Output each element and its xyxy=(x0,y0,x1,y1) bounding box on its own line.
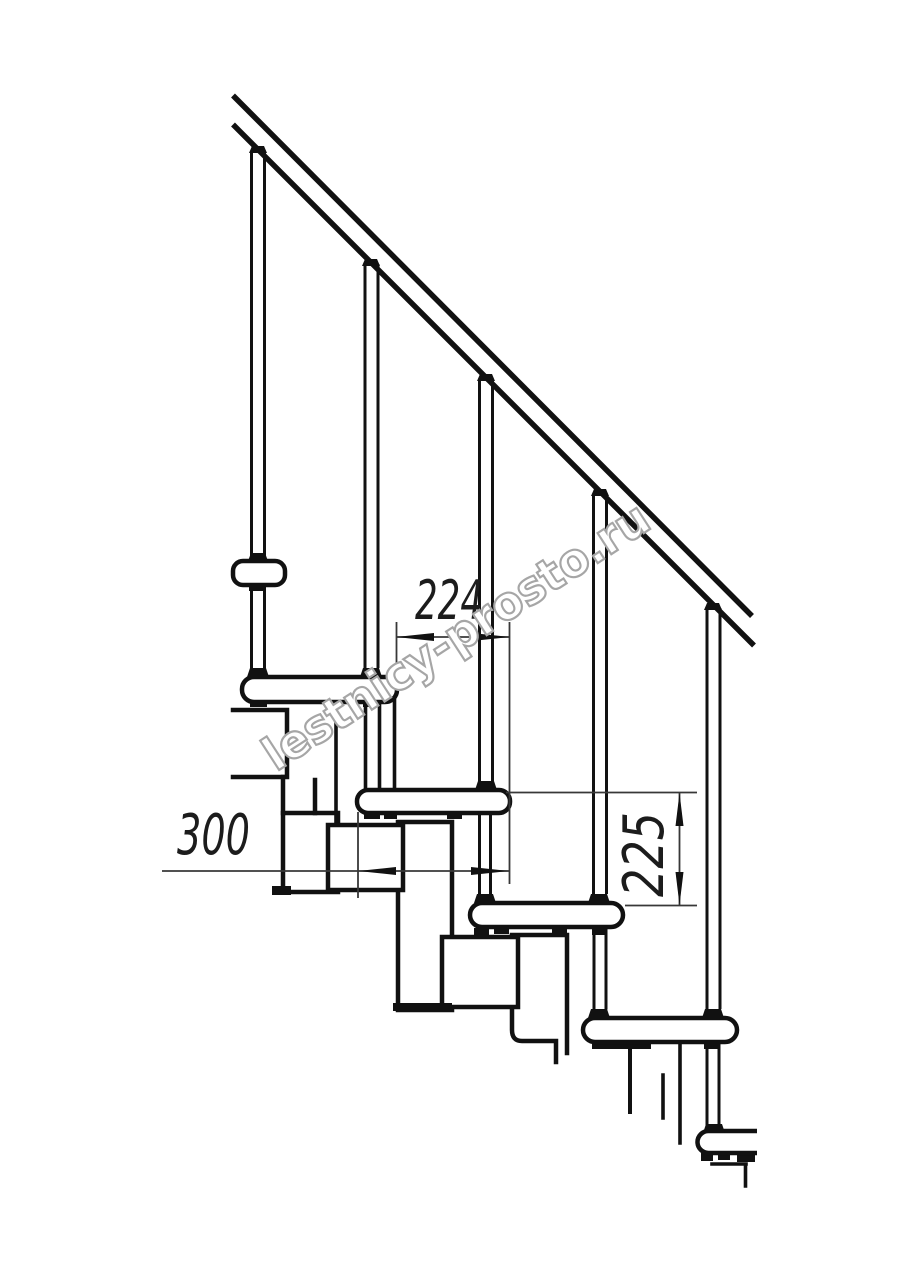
staircase-side-elevation-drawing: 224 300 225 lestnicy-prosto.ru xyxy=(0,0,914,1280)
baluster-4-lower-shaft xyxy=(707,1043,719,1124)
baluster-5-shaft xyxy=(707,608,720,1009)
bracket-descender xyxy=(283,777,315,813)
foot-flange-t4-right xyxy=(702,1009,724,1018)
tread-5-partial xyxy=(698,1131,757,1153)
baluster-3-lower-shaft xyxy=(594,928,606,1008)
nub-t3-d xyxy=(592,928,607,935)
nub-t1-a xyxy=(250,700,267,707)
module-a2-foot xyxy=(272,886,291,895)
nub-t2-a xyxy=(364,812,380,819)
nub-t3-a xyxy=(474,928,489,935)
nub-t3-c xyxy=(552,928,567,934)
module-a3-base-strip xyxy=(393,1003,452,1011)
staircase-drawing-canvas: 224 300 225 lestnicy-prosto.ru xyxy=(0,0,914,1280)
foot-flange-t3-left xyxy=(474,894,496,903)
foot-flange-t3-right xyxy=(588,894,610,903)
tread-3 xyxy=(470,903,623,927)
baluster-2-shaft xyxy=(365,264,378,668)
bottom-fade-outline xyxy=(712,1164,746,1186)
module-a5-edge xyxy=(663,1044,680,1143)
nub-t2-b xyxy=(384,812,397,819)
foot-flange-t4-left xyxy=(588,1009,610,1018)
baluster-2-lower-shaft xyxy=(480,813,491,893)
tread-4 xyxy=(583,1018,737,1042)
module-box-m3 xyxy=(442,937,518,1007)
dim-label-300: 300 xyxy=(177,803,250,868)
dim-label-225: 225 xyxy=(612,812,677,897)
support-modules xyxy=(233,700,746,1186)
tread-2 xyxy=(357,790,510,813)
nub-t3-b xyxy=(494,928,509,934)
watermark-text: lestnicy-prosto.ru xyxy=(253,491,660,781)
foot-flange-t1-left xyxy=(247,668,269,677)
module-box-m2 xyxy=(328,825,403,890)
foot-flange-t5-left xyxy=(703,1124,725,1133)
nub-t4-a xyxy=(704,1042,720,1049)
upper-flight-tread-end xyxy=(233,561,285,585)
tread0-top-flange xyxy=(248,553,268,561)
nub-t2-c xyxy=(447,812,462,819)
foot-flange-t2-right xyxy=(475,781,497,790)
tread0-bottom-nub xyxy=(249,585,266,591)
